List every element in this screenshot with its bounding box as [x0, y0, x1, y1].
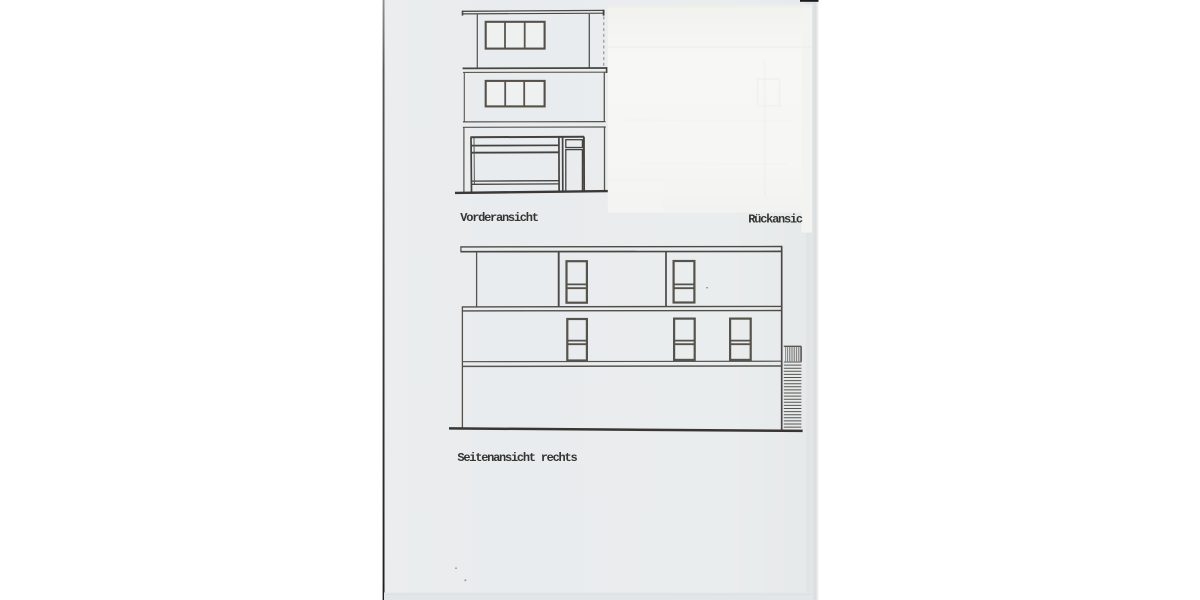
svg-text:Rückansic: Rückansic: [748, 213, 803, 227]
svg-text:Seitenansicht rechts: Seitenansicht rechts: [457, 451, 577, 465]
svg-text:Vorderansicht: Vorderansicht: [460, 211, 538, 225]
